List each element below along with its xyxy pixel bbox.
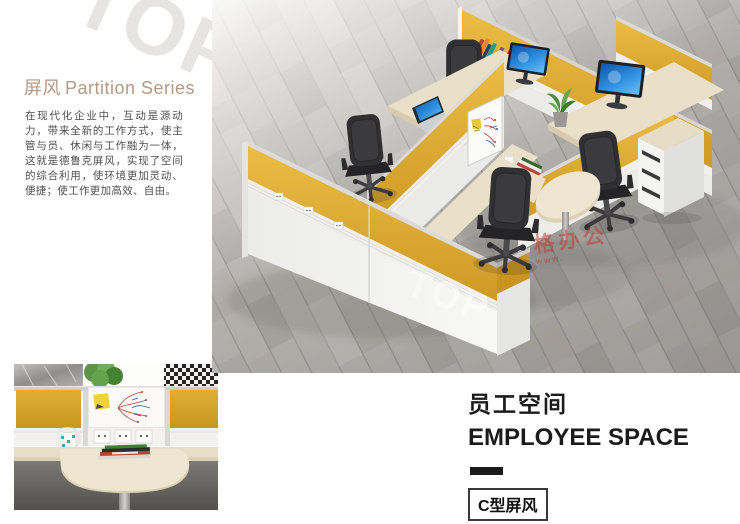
intro-section: 屏风Partition Series 在现代化企业中，互动是源动力，带来全新的工… [24, 74, 192, 199]
detail-book-stack [98, 444, 150, 460]
caption-title-cn: 员工空间 [468, 385, 689, 419]
model-badge: C型屏风 [468, 488, 548, 521]
series-title-cn: 屏风 [24, 78, 61, 98]
caption-section: 员工空间 EMPLOYEE SPACE C型屏风 [468, 385, 689, 521]
detail-socket-rail [88, 428, 165, 446]
catalog-page: TOP 屏风Partition Series 在现代化企业中，互动是源动力，带来… [0, 0, 740, 524]
main-product-photo: 格办公www. TOP [212, 0, 740, 373]
model-badge-label: C型屏风 [478, 498, 538, 515]
caption-divider [470, 467, 503, 475]
detail-photo [14, 364, 218, 510]
backdrop [14, 364, 218, 388]
series-description: 在现代化企业中，互动是源动力，带来全新的工作方式，使主管与员、休闲与工作融为一体… [25, 109, 183, 199]
mug [59, 427, 79, 450]
caption-title-en: EMPLOYEE SPACE [468, 424, 689, 452]
desk-closeup-scene [14, 364, 218, 510]
series-title-en: Partition Series [65, 78, 195, 98]
detail-whiteboard [88, 387, 165, 428]
series-title: 屏风Partition Series [24, 74, 192, 100]
